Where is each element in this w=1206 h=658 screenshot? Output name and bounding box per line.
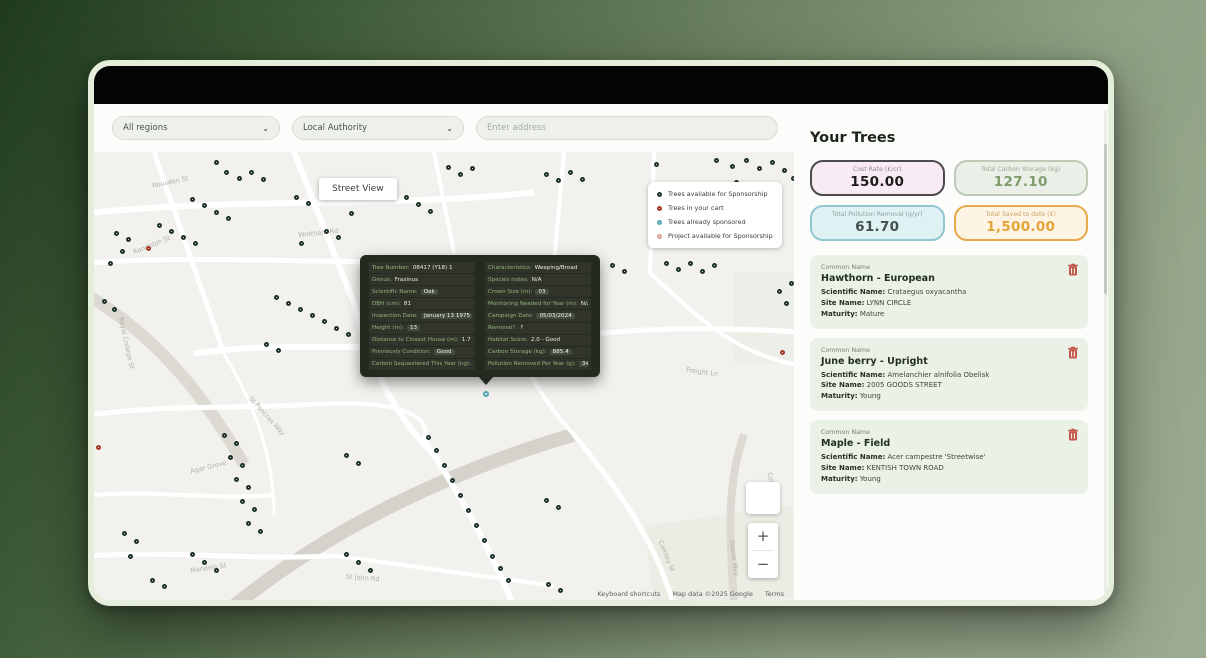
tooltip-field-value: 08417 (Y18) 1: [413, 265, 453, 271]
tree-site-name: Site Name: KENTISH TOWN ROAD: [821, 463, 1077, 474]
tooltip-field-value: Good: [434, 349, 455, 355]
tree-maturity: Maturity: Young: [821, 474, 1077, 485]
address-input[interactable]: [487, 123, 767, 133]
tree-marker[interactable]: [622, 269, 627, 274]
tree-marker[interactable]: [336, 235, 341, 240]
tree-marker[interactable]: [688, 261, 693, 266]
tooltip-left-column: Tree Number:08417 (Y18) 1Genus:FraxinusS…: [369, 262, 475, 370]
tooltip-field-value: 1.7: [462, 337, 471, 343]
tree-scientific-name: Scientific Name: Amelanchier alnifolia O…: [821, 370, 1077, 381]
tree-marker[interactable]: [150, 578, 155, 583]
tree-marker[interactable]: [96, 445, 101, 450]
tree-scientific-name: Scientific Name: Crataegus oxyacantha: [821, 287, 1077, 298]
tree-common-name-label: Common Name: [821, 347, 1077, 354]
stat-card-label: Cost Rate (£/cr): [853, 166, 902, 173]
tree-marker[interactable]: [126, 237, 131, 242]
tree-marker[interactable]: [114, 231, 119, 236]
chevron-down-icon: ⌄: [446, 124, 453, 133]
tree-marker[interactable]: [128, 554, 133, 559]
stat-card-value: 150.00: [850, 174, 904, 190]
stat-card: Cost Rate (£/cr)150.00: [810, 160, 945, 196]
tree-marker[interactable]: [712, 263, 717, 268]
tooltip-row: Distance to Closest House (m):1.7: [369, 335, 475, 346]
tree-marker[interactable]: [356, 461, 361, 466]
map-zoom-control: + −: [748, 523, 778, 578]
legend-item: Trees in your cart: [657, 204, 773, 212]
zoom-out-button[interactable]: −: [748, 551, 778, 578]
zoom-in-button[interactable]: +: [748, 523, 778, 550]
legend-marker-icon: [657, 234, 662, 239]
tree-marker[interactable]: [222, 433, 227, 438]
tree-marker[interactable]: [334, 326, 339, 331]
tooltip-field-label: Monitoring Needed for Year (m):: [488, 301, 578, 307]
tree-marker[interactable]: [299, 241, 304, 246]
tree-marker[interactable]: [664, 261, 669, 266]
tree-site-name: Site Name: LYNN CIRCLE: [821, 298, 1077, 309]
tooltip-row: Previously Condition:Good: [369, 347, 475, 358]
tree-marker[interactable]: [349, 211, 354, 216]
tooltip-field-label: Genus:: [372, 277, 392, 283]
tooltip-row: Pollution Removed Per Year (g):348.3: [485, 359, 591, 370]
tree-marker[interactable]: [356, 560, 361, 565]
tree-list: Common NameHawthorn - EuropeanScientific…: [810, 255, 1088, 494]
tree-info-tooltip: Tree Number:08417 (Y18) 1Genus:FraxinusS…: [360, 255, 600, 377]
region-select[interactable]: All regions ⌄: [112, 116, 280, 140]
tree-name: Maple - Field: [821, 438, 1077, 449]
legend-item-label: Trees in your cart: [668, 204, 724, 212]
tree-site-name: Site Name: 2005 GOODS STREET: [821, 380, 1077, 391]
tooltip-field-label: Inspection Date:: [372, 313, 418, 319]
stat-card-label: Total Pollution Removal (g/yr): [832, 211, 923, 218]
keyboard-shortcuts-link[interactable]: Keyboard shortcuts: [597, 590, 660, 598]
tooltip-field-label: Scientific Name:: [372, 289, 418, 295]
tree-marker[interactable]: [276, 348, 281, 353]
local-authority-select[interactable]: Local Authority ⌄: [292, 116, 464, 140]
trash-icon: [1067, 428, 1079, 441]
tree-marker[interactable]: [146, 246, 151, 251]
tooltip-field-value: Oak: [421, 289, 438, 295]
tooltip-row: Characteristics:Weeping/Broad: [485, 262, 591, 273]
app-window: All regions ⌄ Local Authority ⌄: [88, 60, 1114, 606]
tooltip-field-value: N/A: [532, 277, 542, 283]
tooltip-row: Genus:Fraxinus: [369, 274, 475, 285]
legend-marker-icon: [657, 192, 662, 197]
map-canvas[interactable]: Rousden StRandolph StWrotham RdBusby StR…: [94, 152, 794, 600]
delete-tree-button[interactable]: [1066, 263, 1079, 277]
stat-card: Total Carbon Storage (kg)127.10: [954, 160, 1089, 196]
tree-marker[interactable]: [780, 350, 785, 355]
tree-card[interactable]: Common NameMaple - FieldScientific Name:…: [810, 420, 1088, 494]
street-view-button[interactable]: Street View: [319, 178, 397, 200]
delete-tree-button[interactable]: [1066, 346, 1079, 360]
chevron-down-icon: ⌄: [262, 124, 269, 133]
map-control-button[interactable]: [746, 482, 780, 514]
tree-marker[interactable]: [434, 448, 439, 453]
tree-marker[interactable]: [264, 342, 269, 347]
tooltip-field-label: Campaign Date:: [488, 313, 533, 319]
tooltip-field-value: ?: [520, 325, 523, 331]
tooltip-row: Scientific Name:Oak: [369, 286, 475, 297]
tree-common-name-label: Common Name: [821, 429, 1077, 436]
legend-item-label: Trees available for Sponsorship: [668, 190, 768, 198]
tooltip-row: Species notes:N/A: [485, 274, 591, 285]
tree-marker[interactable]: [108, 261, 113, 266]
tooltip-field-label: Carbon Sequestered This Year (kg):: [372, 361, 471, 367]
tree-marker[interactable]: [169, 229, 174, 234]
tooltip-row: Carbon Sequestered This Year (kg):7.7: [369, 359, 475, 370]
tree-marker[interactable]: [344, 453, 349, 458]
tooltip-field-value: January 13 1975: [421, 313, 472, 319]
tooltip-field-value: 05/03/2024: [536, 313, 574, 319]
tree-marker[interactable]: [610, 263, 615, 268]
tooltip-field-value: N/A: [581, 301, 588, 307]
tree-marker[interactable]: [240, 463, 245, 468]
tooltip-field-label: Previously Condition:: [372, 349, 431, 355]
tooltip-row: Carbon Storage (kg):885.4: [485, 347, 591, 358]
address-search-container: [476, 116, 778, 140]
tree-marker[interactable]: [234, 441, 239, 446]
stat-card-value: 127.10: [994, 174, 1048, 190]
tooltip-field-label: Tree Number:: [372, 265, 410, 271]
tree-marker[interactable]: [190, 552, 195, 557]
tree-maturity: Maturity: Mature: [821, 309, 1077, 320]
tooltip-field-label: Crown Size (m):: [488, 289, 532, 295]
tooltip-field-label: Habitat Score:: [488, 337, 528, 343]
tooltip-row: Campaign Date:05/03/2024: [485, 310, 591, 321]
tooltip-field-label: Carbon Storage (kg):: [488, 349, 547, 355]
tooltip-row: DBH (cm):81: [369, 298, 475, 309]
legend-item-label: Trees already sponsored: [668, 218, 746, 226]
tree-marker[interactable]: [700, 269, 705, 274]
map-legend: Trees available for SponsorshipTrees in …: [648, 182, 782, 248]
stat-card-value: 1,500.00: [986, 219, 1055, 235]
tree-marker[interactable]: [346, 332, 351, 337]
stat-card-label: Total Carbon Storage (kg): [981, 166, 1060, 173]
tree-marker[interactable]: [120, 249, 125, 254]
tooltip-row: Inspection Date:January 13 1975: [369, 310, 475, 321]
sidebar-scrollbar-thumb[interactable]: [1104, 144, 1107, 294]
tree-marker[interactable]: [202, 560, 207, 565]
legend-item: Project available for Sponsorship: [657, 232, 773, 240]
tooltip-field-value: 13: [407, 325, 420, 331]
tree-name: June berry - Upright: [821, 356, 1077, 367]
tree-marker[interactable]: [458, 493, 463, 498]
tree-marker[interactable]: [214, 210, 219, 215]
tooltip-field-label: Species notes:: [488, 277, 529, 283]
filter-bar: All regions ⌄ Local Authority ⌄: [94, 104, 794, 152]
delete-tree-button[interactable]: [1066, 428, 1079, 442]
tree-marker[interactable]: [234, 477, 239, 482]
legend-item: Trees available for Sponsorship: [657, 190, 773, 198]
tree-marker[interactable]: [228, 455, 233, 460]
trash-icon: [1067, 263, 1079, 276]
tooltip-row: Habitat Score:2.0 - Good: [485, 335, 591, 346]
stat-card: Total Saved to date (£)1,500.00: [954, 205, 1089, 241]
tooltip-field-label: Removal?:: [488, 325, 517, 331]
tooltip-row: Removal?:?: [485, 323, 591, 334]
legend-item: Trees already sponsored: [657, 218, 773, 226]
tooltip-field-label: DBH (cm):: [372, 301, 401, 307]
stats-grid: Cost Rate (£/cr)150.00Total Carbon Stora…: [810, 160, 1088, 241]
tooltip-row: Height (m):13: [369, 323, 475, 334]
tree-marker[interactable]: [226, 216, 231, 221]
tree-marker[interactable]: [558, 588, 563, 593]
tree-marker[interactable]: [426, 435, 431, 440]
terms-link[interactable]: Terms: [765, 590, 784, 598]
tree-marker[interactable]: [368, 568, 373, 573]
tree-marker[interactable]: [744, 158, 749, 163]
tree-marker[interactable]: [506, 578, 511, 583]
tooltip-field-value: 03: [535, 289, 548, 295]
tree-marker[interactable]: [246, 485, 251, 490]
tree-marker[interactable]: [162, 584, 167, 589]
tooltip-field-value: Fraxinus: [395, 277, 418, 283]
tooltip-field-value: 348.3: [579, 361, 588, 367]
tree-scientific-name: Scientific Name: Acer campestre 'Streetw…: [821, 452, 1077, 463]
local-authority-value: Local Authority: [303, 123, 367, 133]
map-attribution: Keyboard shortcuts Map data ©2025 Google…: [597, 590, 784, 598]
tree-marker[interactable]: [214, 568, 219, 573]
tree-marker[interactable]: [181, 235, 186, 240]
sidebar-title: Your Trees: [810, 130, 1088, 146]
tooltip-row: Tree Number:08417 (Y18) 1: [369, 262, 475, 273]
trash-icon: [1067, 346, 1079, 359]
legend-item-label: Project available for Sponsorship: [668, 232, 773, 240]
tree-card[interactable]: Common NameHawthorn - EuropeanScientific…: [810, 255, 1088, 329]
tree-marker[interactable]: [498, 566, 503, 571]
tooltip-right-column: Characteristics:Weeping/BroadSpecies not…: [485, 262, 591, 370]
map-copyright: Map data ©2025 Google: [672, 590, 753, 598]
tooltip-field-label: Height (m):: [372, 325, 404, 331]
tooltip-row: Monitoring Needed for Year (m):N/A: [485, 298, 591, 309]
tree-marker[interactable]: [450, 478, 455, 483]
tree-marker[interactable]: [324, 229, 329, 234]
tree-name: Hawthorn - European: [821, 273, 1077, 284]
tree-marker[interactable]: [442, 463, 447, 468]
tooltip-field-label: Characteristics:: [488, 265, 532, 271]
map-column: All regions ⌄ Local Authority ⌄: [94, 104, 794, 600]
tree-marker[interactable]: [428, 209, 433, 214]
sidebar: Your Trees Cost Rate (£/cr)150.00Total C…: [794, 104, 1108, 600]
region-select-value: All regions: [123, 123, 168, 133]
tree-maturity: Maturity: Young: [821, 391, 1077, 402]
tree-marker[interactable]: [193, 241, 198, 246]
tooltip-field-value: Weeping/Broad: [535, 265, 578, 271]
stat-card-value: 61.70: [855, 219, 899, 235]
tree-common-name-label: Common Name: [821, 264, 1077, 271]
window-titlebar: [94, 66, 1108, 104]
stat-card-label: Total Saved to date (£): [986, 211, 1056, 218]
tree-marker[interactable]: [490, 554, 495, 559]
tree-marker[interactable]: [344, 552, 349, 557]
tooltip-field-value: 2.0 - Good: [531, 337, 560, 343]
legend-marker-icon: [657, 220, 662, 225]
tooltip-field-label: Distance to Closest House (m):: [372, 337, 459, 343]
tooltip-field-label: Pollution Removed Per Year (g):: [488, 361, 576, 367]
tooltip-row: Crown Size (m):03: [485, 286, 591, 297]
legend-marker-icon: [657, 206, 662, 211]
tooltip-field-value: 885.4: [550, 349, 572, 355]
window-content: All regions ⌄ Local Authority ⌄: [94, 104, 1108, 600]
tree-marker[interactable]: [676, 267, 681, 272]
stat-card: Total Pollution Removal (g/yr)61.70: [810, 205, 945, 241]
tree-marker[interactable]: [546, 582, 551, 587]
tree-marker[interactable]: [157, 223, 162, 228]
tooltip-field-value: 81: [404, 301, 411, 307]
tree-card[interactable]: Common NameJune berry - UprightScientifi…: [810, 338, 1088, 412]
